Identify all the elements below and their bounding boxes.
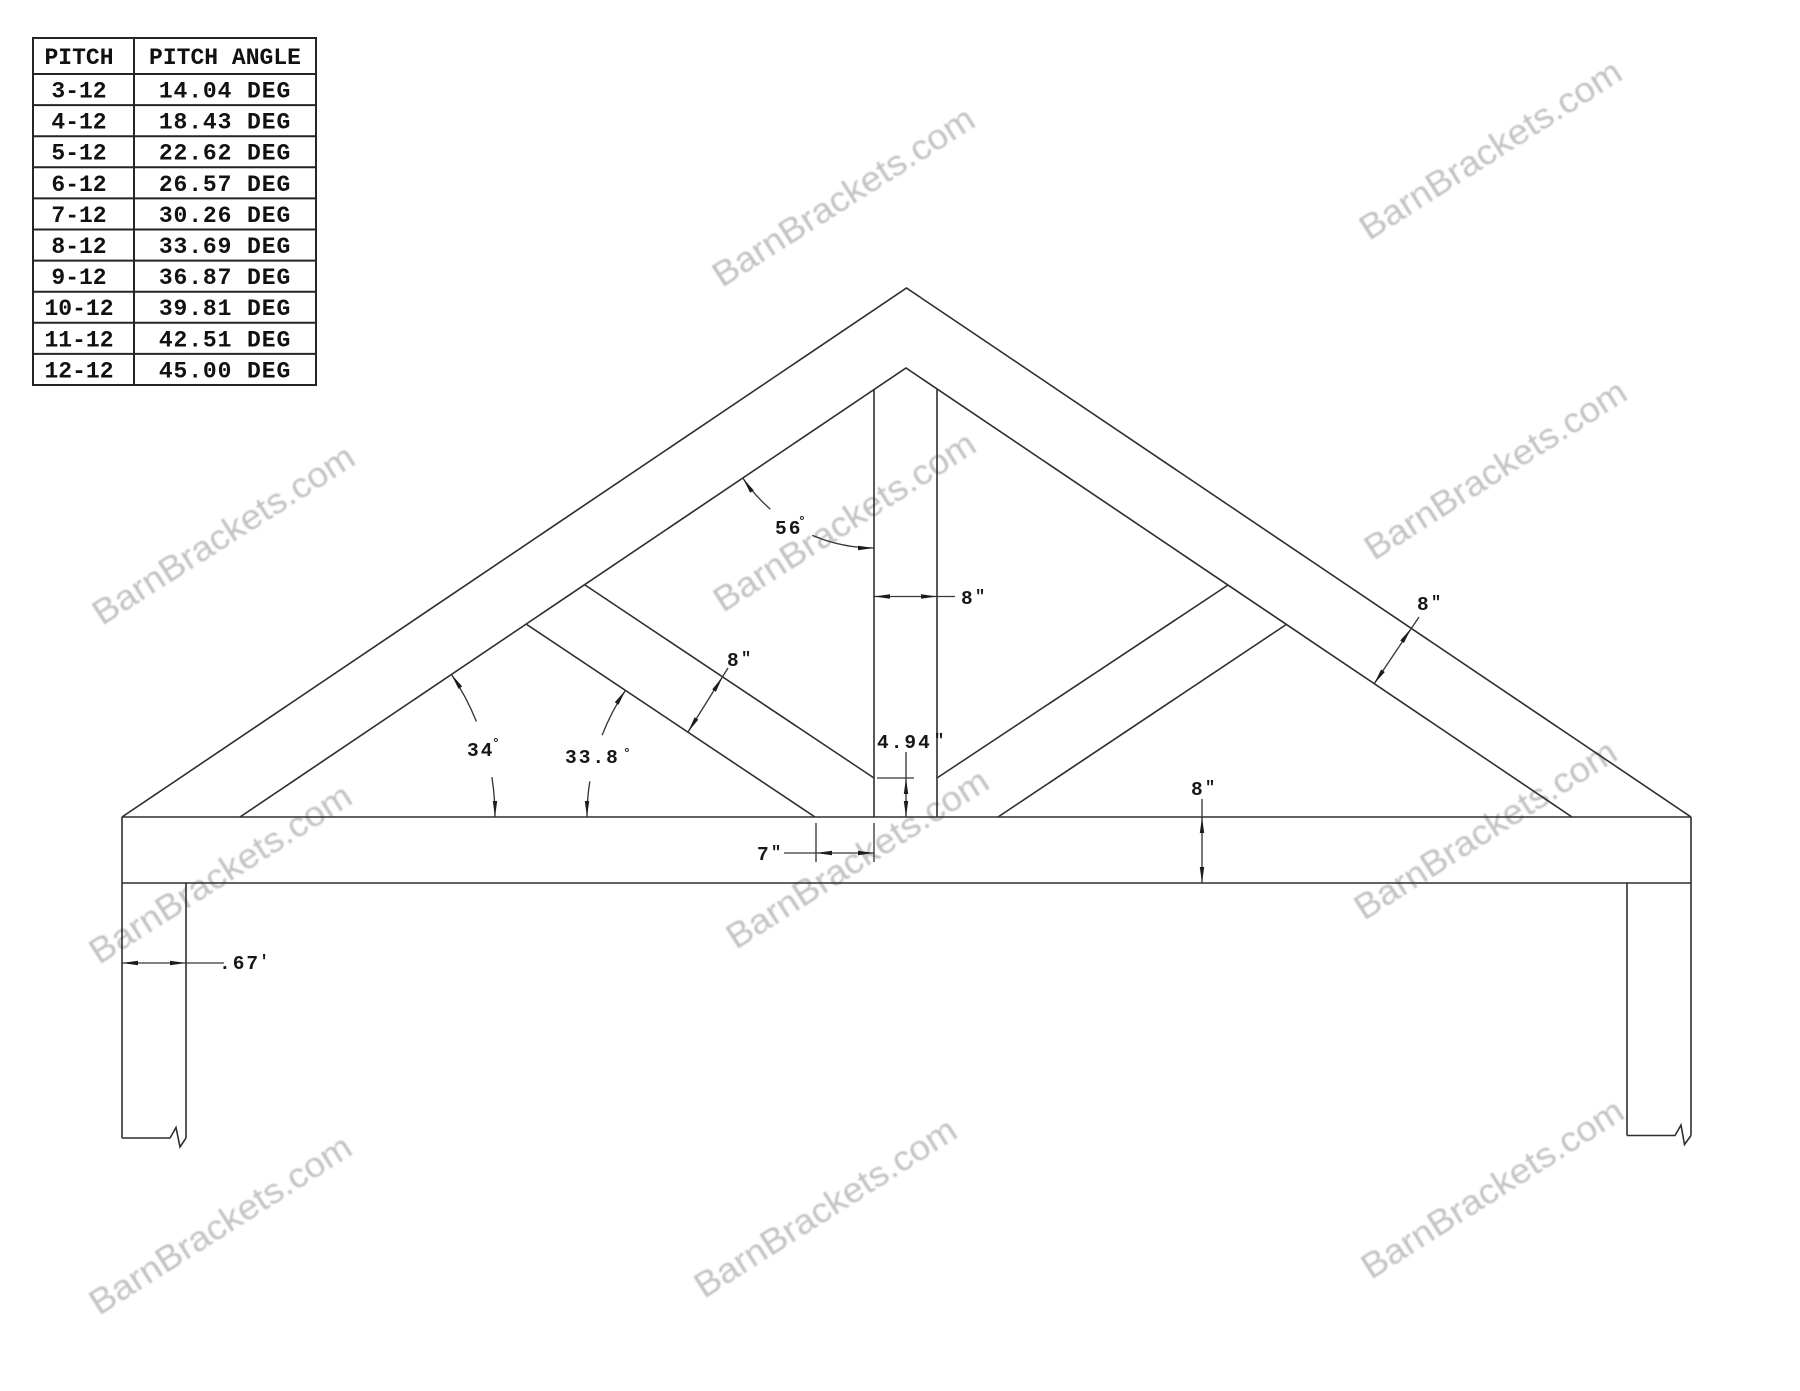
svg-text:33.8: 33.8 xyxy=(565,747,620,769)
svg-text:6-12: 6-12 xyxy=(51,172,106,198)
svg-text:39.81 DEG: 39.81 DEG xyxy=(159,296,291,322)
svg-text:18.43 DEG: 18.43 DEG xyxy=(159,110,291,136)
svg-text:4-12: 4-12 xyxy=(51,110,106,136)
svg-text:.67: .67 xyxy=(219,953,260,975)
svg-text:PITCH: PITCH xyxy=(44,45,113,71)
svg-text:°: ° xyxy=(492,736,500,751)
svg-text:12-12: 12-12 xyxy=(44,358,113,384)
svg-text:": " xyxy=(975,588,985,607)
svg-text:°: ° xyxy=(798,514,806,529)
svg-text:11-12: 11-12 xyxy=(44,327,113,353)
svg-text:8: 8 xyxy=(1417,594,1431,616)
svg-text:14.04 DEG: 14.04 DEG xyxy=(159,79,291,105)
svg-text:45.00 DEG: 45.00 DEG xyxy=(159,358,291,384)
svg-text:7-12: 7-12 xyxy=(51,203,106,229)
svg-text:33.69 DEG: 33.69 DEG xyxy=(159,234,291,260)
svg-text:10-12: 10-12 xyxy=(44,296,113,322)
svg-text:8: 8 xyxy=(1191,779,1205,801)
svg-text:": " xyxy=(1431,594,1441,613)
svg-text:3-12: 3-12 xyxy=(51,79,106,105)
svg-text:22.62 DEG: 22.62 DEG xyxy=(159,141,291,167)
svg-text:9-12: 9-12 xyxy=(51,265,106,291)
svg-text:5-12: 5-12 xyxy=(51,141,106,167)
svg-text:42.51 DEG: 42.51 DEG xyxy=(159,327,291,353)
svg-text:": " xyxy=(1205,779,1215,798)
svg-text:": " xyxy=(771,844,781,863)
svg-text:': ' xyxy=(259,953,269,972)
svg-text:34: 34 xyxy=(467,740,494,762)
svg-text:8: 8 xyxy=(961,588,975,610)
svg-text:36.87 DEG: 36.87 DEG xyxy=(159,265,291,291)
svg-text:4.94: 4.94 xyxy=(877,732,932,754)
svg-text:": " xyxy=(741,650,751,669)
svg-text:PITCH ANGLE: PITCH ANGLE xyxy=(149,45,301,71)
svg-text:7: 7 xyxy=(757,844,771,866)
svg-text:": " xyxy=(934,732,944,751)
svg-text:°: ° xyxy=(623,746,631,761)
svg-text:30.26 DEG: 30.26 DEG xyxy=(159,203,291,229)
svg-text:26.57 DEG: 26.57 DEG xyxy=(159,172,291,198)
svg-text:8-12: 8-12 xyxy=(51,234,106,260)
svg-text:8: 8 xyxy=(727,650,741,672)
